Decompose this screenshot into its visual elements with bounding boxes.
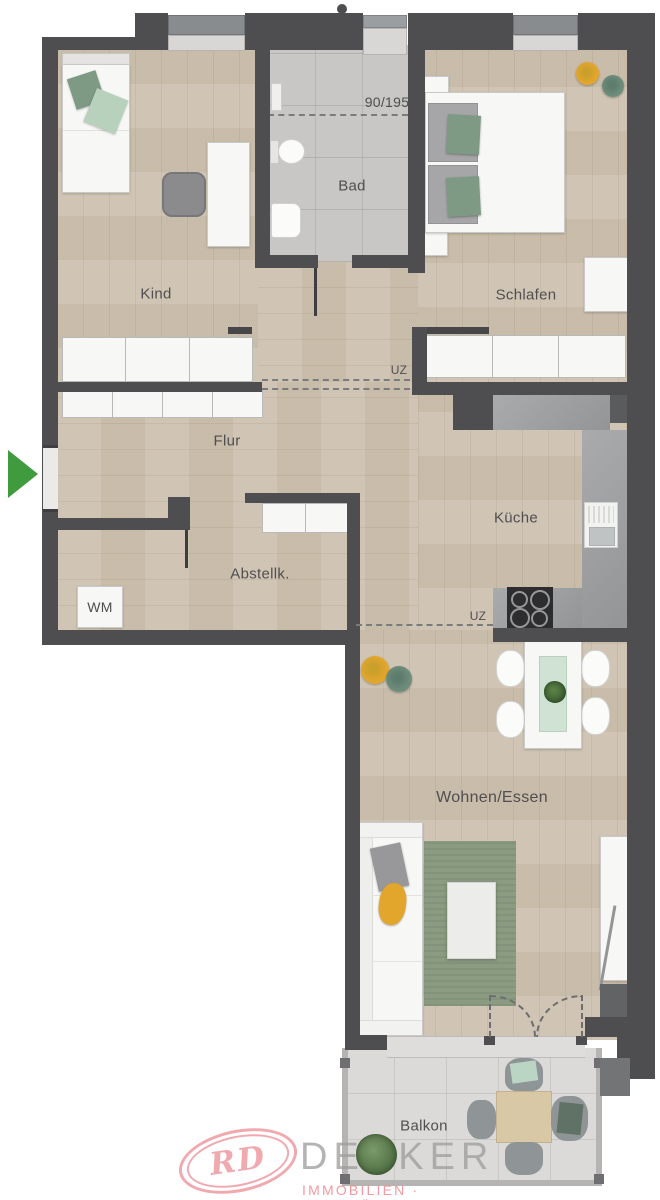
window-bad-sill [363, 28, 407, 55]
flur-wardrobe [62, 390, 262, 418]
bad-door-leaf [314, 268, 317, 316]
balcony-door-leaf [581, 995, 583, 1037]
kind-wardrobe-edge [228, 327, 252, 334]
toilet-bowl [278, 139, 305, 164]
door-size-label: 90/195 [365, 94, 410, 110]
kitchen-counter-top [493, 395, 610, 430]
balcony-door-leaf [489, 995, 491, 1037]
window-schlafen [513, 15, 578, 35]
wall [270, 13, 363, 50]
kind-desk-chair [162, 172, 206, 217]
cooktop [507, 587, 553, 628]
window-kind-sill [168, 35, 245, 51]
shelf-section [262, 503, 306, 533]
bad-shelf [271, 83, 282, 111]
table-plant [544, 681, 566, 703]
room-label-kueche: Küche [494, 510, 538, 527]
beam-dashed-line [262, 388, 410, 390]
balcony-chair-cushion-mint [510, 1060, 539, 1083]
wardrobe-section [212, 390, 263, 418]
balcony-post [340, 1058, 350, 1068]
wall-kind-bad [255, 13, 270, 268]
beam-dashed-line [262, 379, 410, 381]
washer-label: WM [87, 599, 112, 615]
wall-flur-schlafen [418, 382, 655, 395]
kind-desk [207, 142, 250, 247]
balcony-chair [505, 1142, 543, 1175]
bad-dashed-line [268, 114, 408, 116]
wardrobe-section [558, 335, 626, 378]
wall-abstell [58, 518, 170, 530]
washbasin [271, 203, 301, 238]
room-label-flur: Flur [213, 433, 240, 450]
room-label-bad: Bad [338, 178, 366, 195]
wardrobe-section [112, 390, 163, 418]
schlafen-wardrobe-edge [427, 327, 489, 334]
wardrobe-section [162, 390, 213, 418]
window-kind [168, 15, 245, 35]
wall-living-bottom-left [345, 1035, 387, 1050]
wall-kitchen-bottom [493, 628, 655, 642]
wall-bottom-upper-section [42, 630, 358, 645]
balcony-chair-cushion-dark [556, 1102, 583, 1135]
logo-company-name: DECKER [300, 1136, 494, 1179]
beam-label-top: UZ [391, 363, 408, 377]
coffee-table [447, 882, 496, 959]
wall-kind-flur [57, 382, 262, 392]
decker-logo: RD DECKER IMMOBILIEN · BAUTRÄGER [178, 1122, 508, 1200]
rd-monogram-icon: RD [178, 1130, 298, 1192]
wall-bad-schlafen [408, 13, 425, 273]
door-jamb [484, 1036, 495, 1045]
dining-chair [496, 650, 525, 687]
wall [425, 13, 513, 50]
pouf-green [602, 75, 624, 97]
wall-right [627, 13, 655, 1037]
bed-cushion-green [446, 176, 481, 217]
room-label-wohnen: Wohnen/Essen [436, 789, 548, 807]
room-label-kind: Kind [140, 286, 171, 303]
door-jamb [576, 1036, 587, 1045]
balcony-post [594, 1174, 604, 1184]
dining-chair [581, 697, 610, 735]
wall-living-bottom-right [585, 1017, 655, 1037]
plan-marker-dot [337, 4, 347, 14]
wall-abstell-top [245, 493, 360, 503]
wall-abstell [168, 497, 190, 530]
logo-monogram-text: RD [174, 1122, 301, 1200]
wall-kitchen-stub [453, 395, 493, 430]
pouf-yellow [361, 656, 389, 684]
wardrobe-section [492, 335, 560, 378]
wall-bad-bottom [352, 255, 425, 268]
dining-chair [496, 701, 525, 738]
wardrobe-section [189, 337, 253, 382]
abstell-door-leaf [185, 530, 188, 568]
kitchen-sink [584, 502, 618, 548]
bed-cushion-green [446, 114, 481, 155]
wardrobe-section [62, 390, 113, 418]
schlafen-dresser [584, 257, 628, 312]
wall-left [42, 37, 58, 645]
room-label-abstell: Abstellk. [230, 566, 289, 583]
media-box [600, 984, 628, 1017]
beam-label-bottom: UZ [470, 609, 487, 623]
pouf-green [386, 666, 412, 692]
balcony-plant [356, 1134, 397, 1175]
abstell-shelves [262, 503, 348, 533]
floor-plan: Kind Bad Schlafen Flur Küche Abstellk. W… [0, 0, 660, 1200]
wall [135, 13, 168, 50]
room-label-schlafen: Schlafen [496, 287, 557, 304]
entrance-arrow-icon [8, 450, 38, 498]
entry-door [43, 445, 58, 512]
wardrobe-section [425, 335, 493, 378]
shelf-section [305, 503, 349, 533]
kind-wardrobe [62, 337, 252, 382]
wardrobe-section [62, 337, 126, 382]
wall-bad-bottom [255, 255, 318, 268]
beam-dashed-line [356, 624, 493, 626]
corner-pillar-gray [600, 1058, 630, 1096]
schlafen-wardrobe [425, 335, 625, 378]
wall-living-left [345, 630, 360, 1050]
wardrobe-section [125, 337, 189, 382]
pouf-yellow [576, 62, 599, 85]
dining-chair [581, 650, 610, 687]
wall-abstell-right [347, 493, 360, 640]
logo-tagline: IMMOBILIEN · BAUTRÄGER [302, 1182, 508, 1200]
window-schlafen-sill [513, 35, 578, 51]
window-bad [363, 15, 407, 28]
